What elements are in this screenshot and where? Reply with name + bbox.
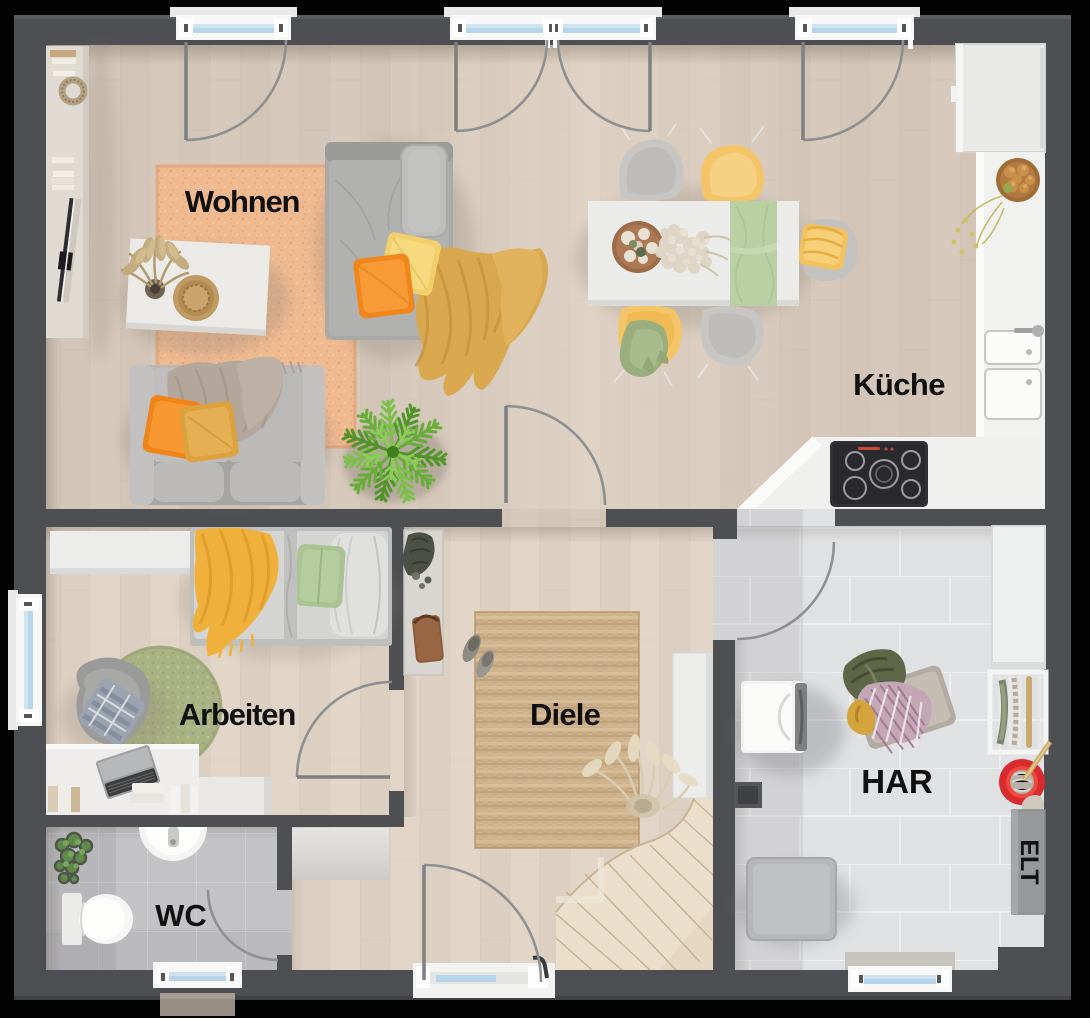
svg-text:Küche: Küche (853, 367, 945, 402)
svg-text:WC: WC (155, 898, 207, 933)
svg-text:Arbeiten: Arbeiten (179, 697, 295, 732)
svg-text:Wohnen: Wohnen (185, 184, 300, 219)
svg-text:ELT: ELT (1015, 839, 1043, 884)
svg-text:HAR: HAR (861, 763, 933, 800)
svg-text:Diele: Diele (530, 697, 601, 732)
